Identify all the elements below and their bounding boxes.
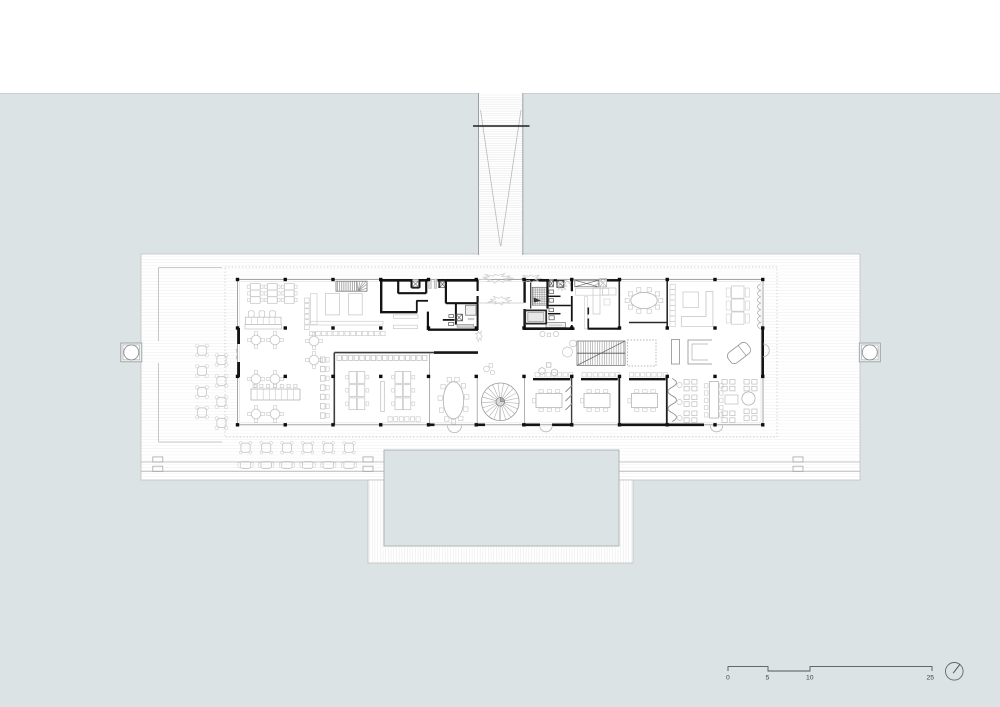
svg-text:5: 5 <box>766 675 770 682</box>
svg-text:10: 10 <box>806 675 814 682</box>
svg-text:25: 25 <box>927 675 935 682</box>
svg-text:0: 0 <box>726 675 730 682</box>
